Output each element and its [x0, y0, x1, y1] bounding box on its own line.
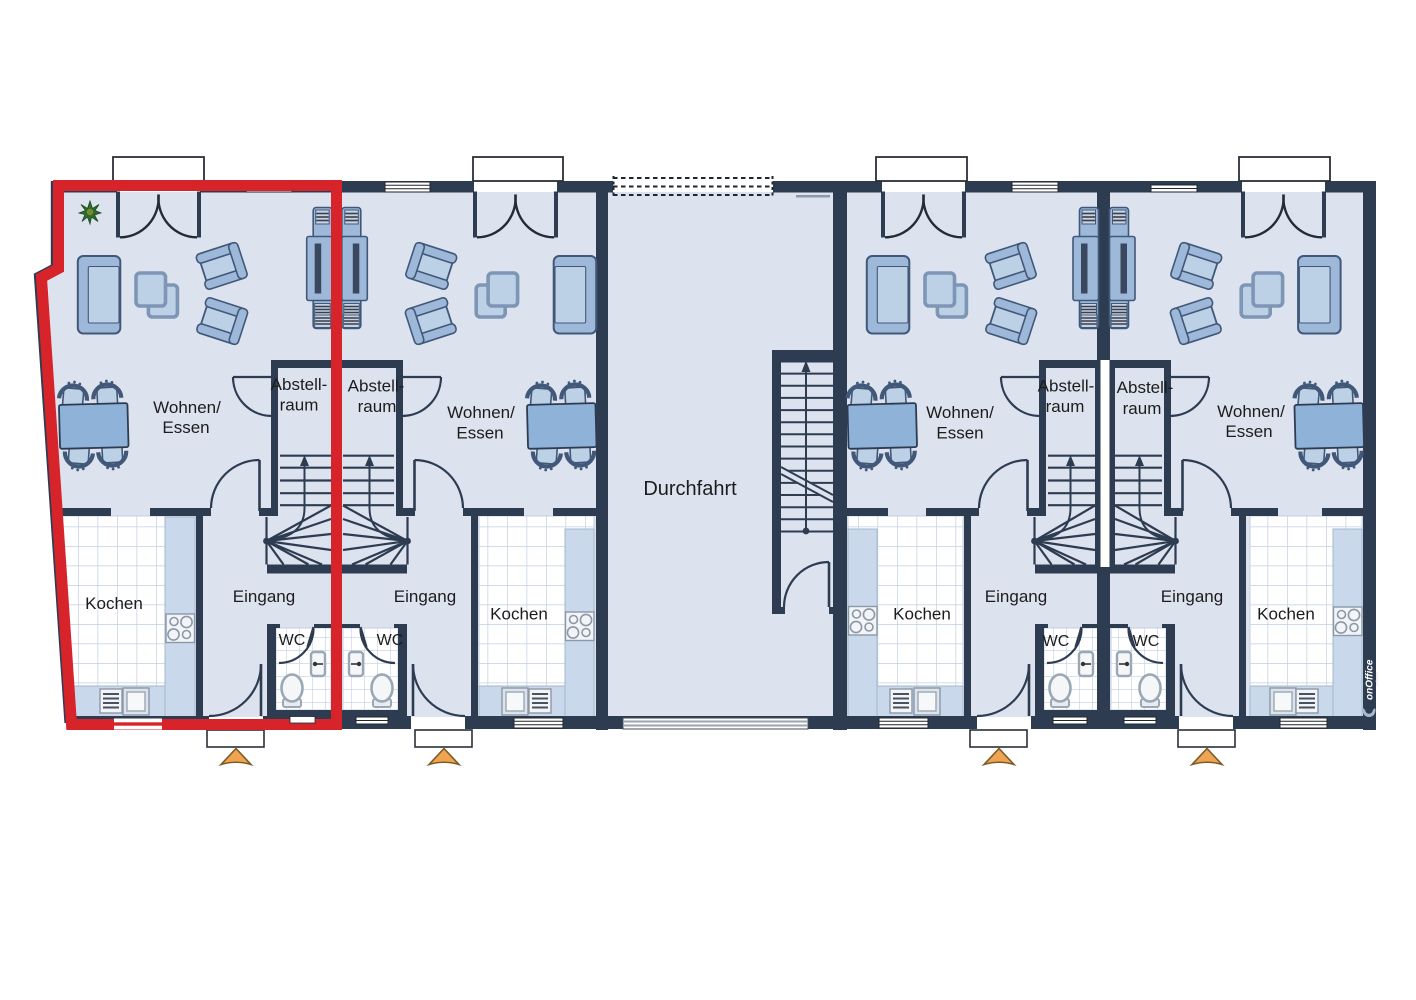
- svg-text:software: software: [1375, 672, 1379, 686]
- svg-text:raum: raum: [1123, 399, 1162, 418]
- svg-text:Wohnen/: Wohnen/: [153, 398, 221, 417]
- svg-text:raum: raum: [358, 397, 397, 416]
- svg-text:Wohnen/: Wohnen/: [926, 403, 994, 422]
- svg-text:Eingang: Eingang: [233, 587, 295, 606]
- svg-text:Abstell-: Abstell-: [348, 377, 405, 396]
- svg-text:Durchfahrt: Durchfahrt: [643, 478, 737, 500]
- svg-text:onOffice: onOffice: [1365, 659, 1376, 700]
- svg-text:Abstell-: Abstell-: [1038, 377, 1095, 396]
- svg-text:WC: WC: [377, 632, 404, 649]
- svg-text:Kochen: Kochen: [85, 594, 143, 613]
- svg-text:Kochen: Kochen: [490, 605, 548, 624]
- svg-text:Essen: Essen: [456, 424, 503, 443]
- svg-text:Wohnen/: Wohnen/: [447, 403, 515, 422]
- svg-text:Abstell-: Abstell-: [271, 375, 328, 394]
- svg-text:raum: raum: [1046, 397, 1085, 416]
- svg-text:Kochen: Kochen: [893, 605, 951, 624]
- svg-text:raum: raum: [280, 396, 319, 415]
- svg-text:WC: WC: [1133, 633, 1160, 650]
- svg-text:WC: WC: [279, 632, 306, 649]
- svg-text:Eingang: Eingang: [1161, 587, 1223, 606]
- svg-text:Eingang: Eingang: [985, 587, 1047, 606]
- svg-text:Essen: Essen: [162, 418, 209, 437]
- svg-text:Kochen: Kochen: [1257, 605, 1315, 624]
- svg-text:WC: WC: [1043, 633, 1070, 650]
- svg-text:Essen: Essen: [936, 424, 983, 443]
- svg-text:Eingang: Eingang: [394, 587, 456, 606]
- svg-text:Essen: Essen: [1225, 422, 1272, 441]
- svg-text:Wohnen/: Wohnen/: [1217, 402, 1285, 421]
- svg-text:Abstell-: Abstell-: [1117, 378, 1174, 397]
